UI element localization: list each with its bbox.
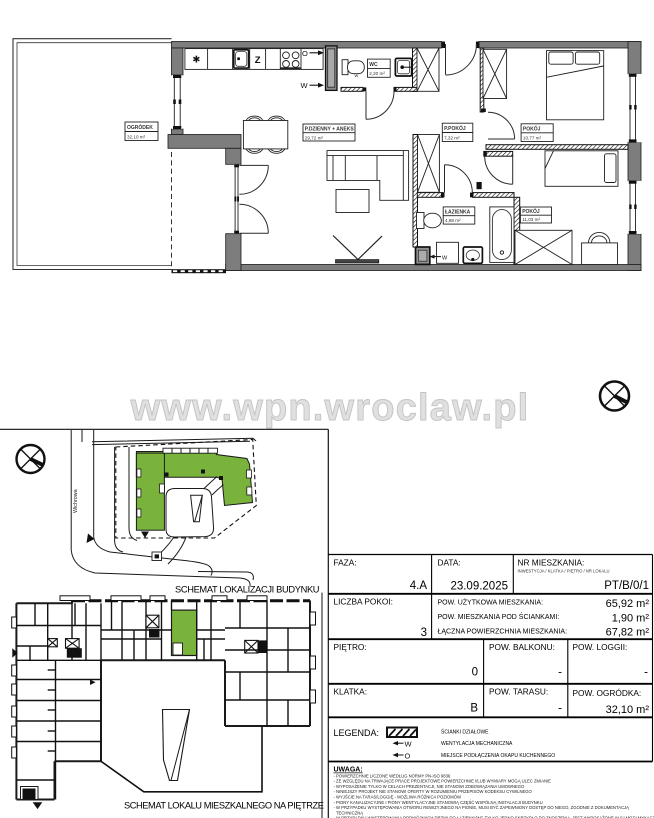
svg-text:B: B xyxy=(470,703,478,715)
svg-text:- W PRZYPADKU WYSTĘPOWANIA OTW: - W PRZYPADKU WYSTĘPOWANIA OTWORU REWIZY… xyxy=(334,805,630,810)
svg-text:POW. BALKONU:: POW. BALKONU: xyxy=(489,642,555,652)
svg-text:POW. UŻYTKOWA MIESZKANIA:: POW. UŻYTKOWA MIESZKANIA: xyxy=(438,598,544,607)
svg-text:KLATKA:: KLATKA: xyxy=(334,687,368,697)
svg-text:- ZE WZGLĘDU NA TRWAJĄCE PRAC: - ZE WZGLĘDU NA TRWAJĄCE PRACE PROJEKTOW… xyxy=(334,779,552,784)
svg-text:SCHEMAT LOKALIZACJI BUDYNKU: SCHEMAT LOKALIZACJI BUDYNKU xyxy=(175,585,319,595)
svg-text:LEGENDA:: LEGENDA: xyxy=(334,728,380,738)
svg-text:65,92 m²: 65,92 m² xyxy=(606,598,650,610)
svg-text:NR MIESZKANIA:: NR MIESZKANIA: xyxy=(518,558,585,568)
svg-text:O: O xyxy=(405,751,411,760)
svg-text:3: 3 xyxy=(421,627,427,639)
svg-text:WENTYLACJA MECHANICZNA: WENTYLACJA MECHANICZNA xyxy=(441,741,513,747)
svg-text:PT/B/0/1: PT/B/0/1 xyxy=(604,580,649,592)
svg-text:-: - xyxy=(558,667,562,679)
svg-text:Z: Z xyxy=(255,55,261,66)
svg-text:-: - xyxy=(644,667,648,679)
svg-text:WC: WC xyxy=(369,62,378,68)
svg-text:P.POKÓJ: P.POKÓJ xyxy=(444,124,466,132)
svg-text:POW. TARASU:: POW. TARASU: xyxy=(489,687,548,697)
svg-text:W: W xyxy=(405,740,413,749)
svg-text:- WYJŚCIE NA TARAS/LOGGIĘ - MO: - WYJŚCIE NA TARAS/LOGGIĘ - MOŻLIWA RÓŻN… xyxy=(334,795,461,800)
svg-text:1,90 m²: 1,90 m² xyxy=(612,613,650,625)
svg-text:POW. MIESZKANIA POD ŚCIANKAMI:: POW. MIESZKANIA POD ŚCIANKAMI: xyxy=(438,612,560,621)
svg-text:PIĘTRO:: PIĘTRO: xyxy=(334,642,367,652)
svg-text:23.09.2025: 23.09.2025 xyxy=(450,581,508,593)
svg-text:ŁĄCZNA POWIERZCHNIA MIESZKANIA: ŁĄCZNA POWIERZCHNIA MIESZKANIA: xyxy=(438,629,568,636)
svg-text:7,32 m²: 7,32 m² xyxy=(444,135,460,140)
svg-text:FAZA:: FAZA: xyxy=(334,558,357,568)
svg-text:4.A: 4.A xyxy=(410,580,428,592)
svg-text:- WYPOSAŻENIE TYLKO W CELACH P: - WYPOSAŻENIE TYLKO W CELACH PREZENTACJI… xyxy=(334,784,526,789)
svg-text:POKÓJ: POKÓJ xyxy=(522,207,540,215)
svg-text:POW. OGRÓDKA:: POW. OGRÓDKA: xyxy=(573,688,642,698)
svg-text:29,72 m²: 29,72 m² xyxy=(305,135,324,140)
svg-text:SCHEMAT LOKALU MIESZKALNEGO NA: SCHEMAT LOKALU MIESZKALNEGO NA PIĘTRZE xyxy=(124,801,324,811)
svg-text:-: - xyxy=(558,703,562,715)
svg-text:MIEJSCE PODŁĄCZENIA OKAPU KUCH: MIEJSCE PODŁĄCZENIA OKAPU KUCHENNEGO xyxy=(441,753,555,759)
svg-text:ŚCIANKI DZIAŁOWE: ŚCIANKI DZIAŁOWE xyxy=(441,728,489,736)
svg-text:11,03 m²: 11,03 m² xyxy=(522,217,540,222)
svg-text:POW. LOGGII:: POW. LOGGII: xyxy=(573,642,628,652)
svg-text:O: O xyxy=(302,49,308,58)
svg-text:TECHNICZNĄ: TECHNICZNĄ xyxy=(336,810,363,815)
svg-text:POKÓJ: POKÓJ xyxy=(523,125,541,133)
svg-text:OGRÓDEK: OGRÓDEK xyxy=(127,123,153,131)
svg-text:10,77 m²: 10,77 m² xyxy=(523,136,542,141)
svg-text:ŁAZIENKA: ŁAZIENKA xyxy=(445,209,471,215)
svg-text:P.DZIENNY + ANEKS: P.DZIENNY + ANEKS xyxy=(305,127,355,133)
svg-text:✱: ✱ xyxy=(192,55,200,66)
svg-text:- POWIERZCHNIE LICZONE WEDŁUG: - POWIERZCHNIE LICZONE WEDŁUG NORMY PN-I… xyxy=(334,773,451,778)
svg-text:4,88 m²: 4,88 m² xyxy=(445,218,461,223)
svg-text:INWESTYCJA / KLATKA / PIĘTRO /: INWESTYCJA / KLATKA / PIĘTRO / NR LOKALU xyxy=(518,568,610,573)
svg-text:- PIONY KANALIZACYJNE I PIONY: - PIONY KANALIZACYJNE I PIONY WENTYLACYJ… xyxy=(334,800,543,805)
svg-text:32,10 m²: 32,10 m² xyxy=(606,704,650,716)
svg-text:W: W xyxy=(301,81,309,90)
svg-text:2,20 m²: 2,20 m² xyxy=(369,71,385,76)
svg-text:www.wpn.wroclaw.pl: www.wpn.wroclaw.pl xyxy=(130,387,530,429)
svg-text:67,82 m²: 67,82 m² xyxy=(606,627,650,639)
svg-text:0: 0 xyxy=(472,667,478,679)
svg-text:32,10 m²: 32,10 m² xyxy=(127,134,146,139)
svg-text:LICZBA POKOI:: LICZBA POKOI: xyxy=(334,597,393,607)
svg-text:DATA:: DATA: xyxy=(438,558,461,568)
svg-text:W: W xyxy=(442,255,448,261)
svg-text:W: W xyxy=(355,73,359,78)
svg-text:Wichrowa: Wichrowa xyxy=(73,489,79,513)
svg-text:- NINIEJSZY PROJEKT NIE STANOW: - NINIEJSZY PROJEKT NIE STANOWI OFERTY W… xyxy=(334,789,533,794)
